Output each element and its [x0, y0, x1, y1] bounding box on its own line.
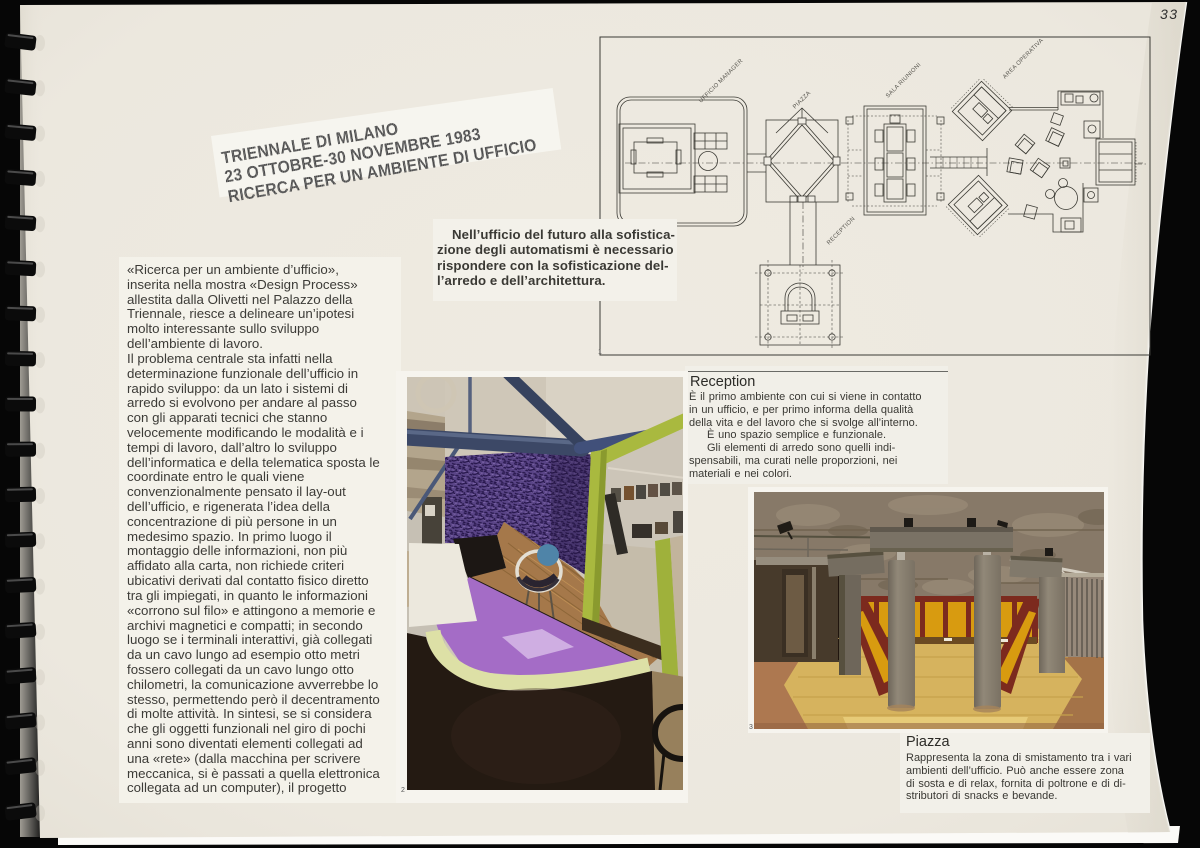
svg-text:PIAZZA: PIAZZA [792, 90, 812, 110]
svg-text:AREA OPERATIVA: AREA OPERATIVA [1002, 38, 1045, 81]
svg-text:SALA RIUNIONI: SALA RIUNIONI [885, 62, 922, 99]
svg-text:RECEPTION: RECEPTION [826, 216, 856, 246]
